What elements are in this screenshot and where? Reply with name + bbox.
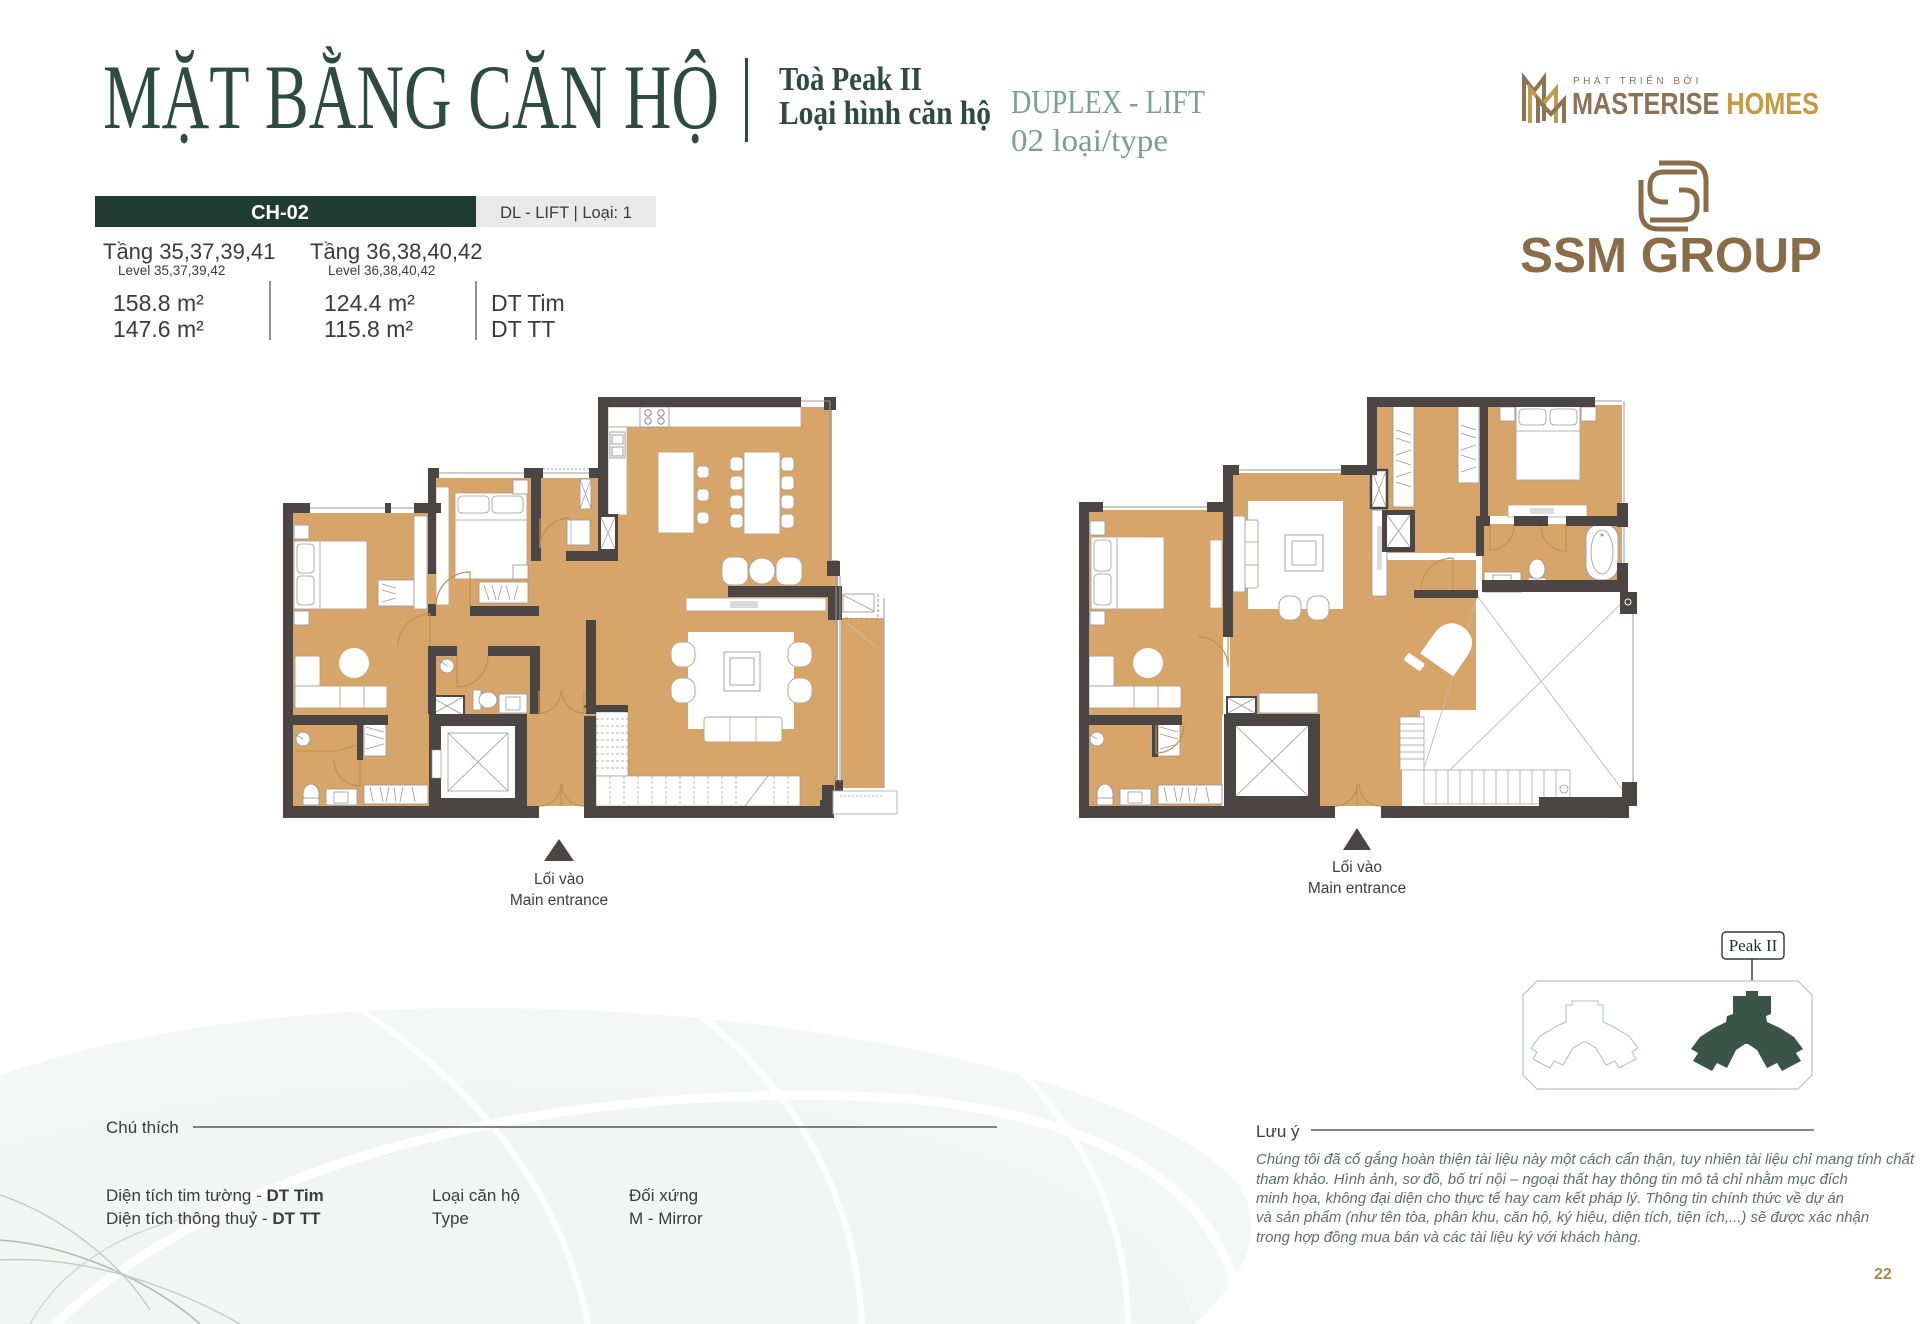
svg-text:Loại căn hộ: Loại căn hộ [432,1186,520,1205]
svg-text:Lối vào: Lối vào [1332,859,1382,876]
svg-text:M - Mirror: M - Mirror [629,1209,703,1228]
svg-text:Diện tích thông thuỷ - DT TT: Diện tích thông thuỷ - DT TT [106,1209,321,1228]
svg-text:SSM GROUP: SSM GROUP [1520,229,1822,283]
svg-text:Diện tích tim tường - DT Tim: Diện tích tim tường - DT Tim [106,1186,324,1205]
svg-text:DT TT: DT TT [491,316,555,340]
svg-text:DL - LIFT | Loại: 1: DL - LIFT | Loại: 1 [500,204,632,222]
svg-text:158.8 m²: 158.8 m² [113,290,204,316]
svg-text:Chú thích: Chú thích [106,1118,179,1137]
svg-text:Main entrance: Main entrance [510,892,608,909]
svg-text:124.4 m²: 124.4 m² [324,290,415,316]
svg-text:DUPLEX - LIFT: DUPLEX - LIFT [1011,84,1205,121]
svg-text:02 loại/type: 02 loại/type [1011,122,1168,158]
svg-text:Type: Type [432,1209,469,1228]
svg-text:Lối vào: Lối vào [534,871,584,888]
svg-text:và sản phẩm (như tên tòa, phân: và sản phẩm (như tên tòa, phân khu, căn … [1256,1210,1869,1226]
svg-text:Lưu ý: Lưu ý [1256,1122,1300,1141]
svg-text:Tầng 36,38,40,42: Tầng 36,38,40,42 [310,239,482,264]
svg-text:tham khảo. Hình ảnh, sơ đồ, bố: tham khảo. Hình ảnh, sơ đồ, bố trí nội –… [1256,1171,1848,1188]
svg-text:MASTERISE HOMES: MASTERISE HOMES [1572,86,1819,121]
svg-text:147.6 m²: 147.6 m² [113,316,204,340]
svg-text:Main entrance: Main entrance [1308,880,1406,897]
svg-text:DT Tim: DT Tim [491,290,565,316]
svg-text:115.8 m²: 115.8 m² [324,316,413,340]
svg-text:Đối xứng: Đối xứng [629,1186,698,1205]
svg-text:Level 36,38,40,42: Level 36,38,40,42 [328,263,435,278]
svg-text:Peak II: Peak II [1729,936,1778,955]
svg-text:Chúng tôi đã cố gắng hoàn thiệ: Chúng tôi đã cố gắng hoàn thiện tài liệu… [1256,1151,1915,1168]
svg-text:Loại hình căn hộ: Loại hình căn hộ [779,95,991,132]
svg-text:CH-02: CH-02 [251,202,309,224]
svg-text:trong hợp đồng mua bán và các: trong hợp đồng mua bán và các tài liệu k… [1256,1230,1642,1246]
svg-text:MẶT BẰNG CĂN HỘ: MẶT BẰNG CĂN HỘ [103,46,719,148]
svg-text:Tầng 35,37,39,41: Tầng 35,37,39,41 [103,239,275,264]
svg-text:Toà Peak II: Toà Peak II [779,61,922,98]
svg-text:Level 35,37,39,42: Level 35,37,39,42 [118,263,225,278]
svg-text:minh họa, không đại diện cho t: minh họa, không đại diện cho thực tế hay… [1256,1191,1844,1207]
svg-text:22: 22 [1874,1266,1892,1283]
